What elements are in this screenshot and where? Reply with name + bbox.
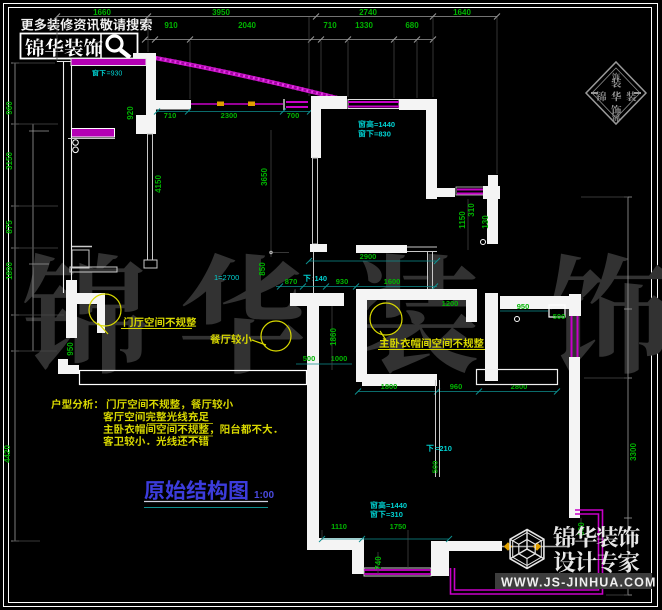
svg-text:740: 740 <box>374 556 383 570</box>
svg-text:3950: 3950 <box>212 8 230 17</box>
svg-text:4420: 4420 <box>3 445 12 463</box>
svg-text:500: 500 <box>303 354 316 363</box>
svg-text:710: 710 <box>323 21 337 30</box>
svg-text:1150: 1150 <box>458 211 467 229</box>
svg-text:1660: 1660 <box>93 8 111 17</box>
svg-text:1890: 1890 <box>5 262 14 280</box>
svg-text:1110: 1110 <box>331 522 347 531</box>
svg-text:1200: 1200 <box>442 299 459 308</box>
svg-text:1640: 1640 <box>453 8 471 17</box>
svg-text:1:00: 1:00 <box>254 490 274 501</box>
svg-text:710: 710 <box>164 111 177 120</box>
svg-text:680: 680 <box>405 21 419 30</box>
svg-text:3300: 3300 <box>629 443 638 461</box>
svg-text:=1440: =1440 <box>386 501 407 510</box>
svg-text:870: 870 <box>285 277 298 286</box>
svg-text:960: 960 <box>5 101 14 115</box>
svg-text:1000: 1000 <box>331 354 348 363</box>
svg-text:2040: 2040 <box>238 21 256 30</box>
svg-text:2300: 2300 <box>221 111 238 120</box>
svg-text:500: 500 <box>553 312 566 321</box>
svg-text:1750: 1750 <box>390 522 407 531</box>
svg-text:=310: =310 <box>386 510 403 519</box>
svg-text::140: :140 <box>312 274 327 283</box>
svg-text:1860: 1860 <box>329 328 338 346</box>
svg-text:930: 930 <box>336 277 349 286</box>
svg-text:130: 130 <box>481 215 490 229</box>
svg-text:4150: 4150 <box>154 175 163 193</box>
svg-text:950: 950 <box>66 342 75 356</box>
svg-text:=930: =930 <box>107 71 123 78</box>
svg-text:875: 875 <box>5 220 14 234</box>
svg-text:920: 920 <box>126 106 135 120</box>
svg-text:=830: =830 <box>374 130 391 139</box>
svg-text:960: 960 <box>450 382 463 391</box>
svg-text:850: 850 <box>258 262 267 276</box>
svg-text:1330: 1330 <box>355 21 373 30</box>
svg-text:1=2700: 1=2700 <box>214 273 239 282</box>
svg-text:2900: 2900 <box>360 252 377 261</box>
svg-text:=1440: =1440 <box>374 120 395 129</box>
svg-text:500: 500 <box>431 461 440 474</box>
svg-text:1800: 1800 <box>381 382 398 391</box>
svg-text:310: 310 <box>467 203 476 217</box>
svg-text:910: 910 <box>164 21 178 30</box>
svg-text:3650: 3650 <box>260 168 269 186</box>
svg-text:=210: =210 <box>435 444 452 453</box>
svg-text:700: 700 <box>287 111 300 120</box>
svg-text:1600: 1600 <box>384 277 401 286</box>
svg-text:2800: 2800 <box>511 382 528 391</box>
svg-text:WWW.JS-JINHUA.COM: WWW.JS-JINHUA.COM <box>501 576 657 590</box>
svg-text:2740: 2740 <box>359 8 377 17</box>
svg-text:3150: 3150 <box>5 152 14 170</box>
svg-text:950: 950 <box>517 302 530 311</box>
